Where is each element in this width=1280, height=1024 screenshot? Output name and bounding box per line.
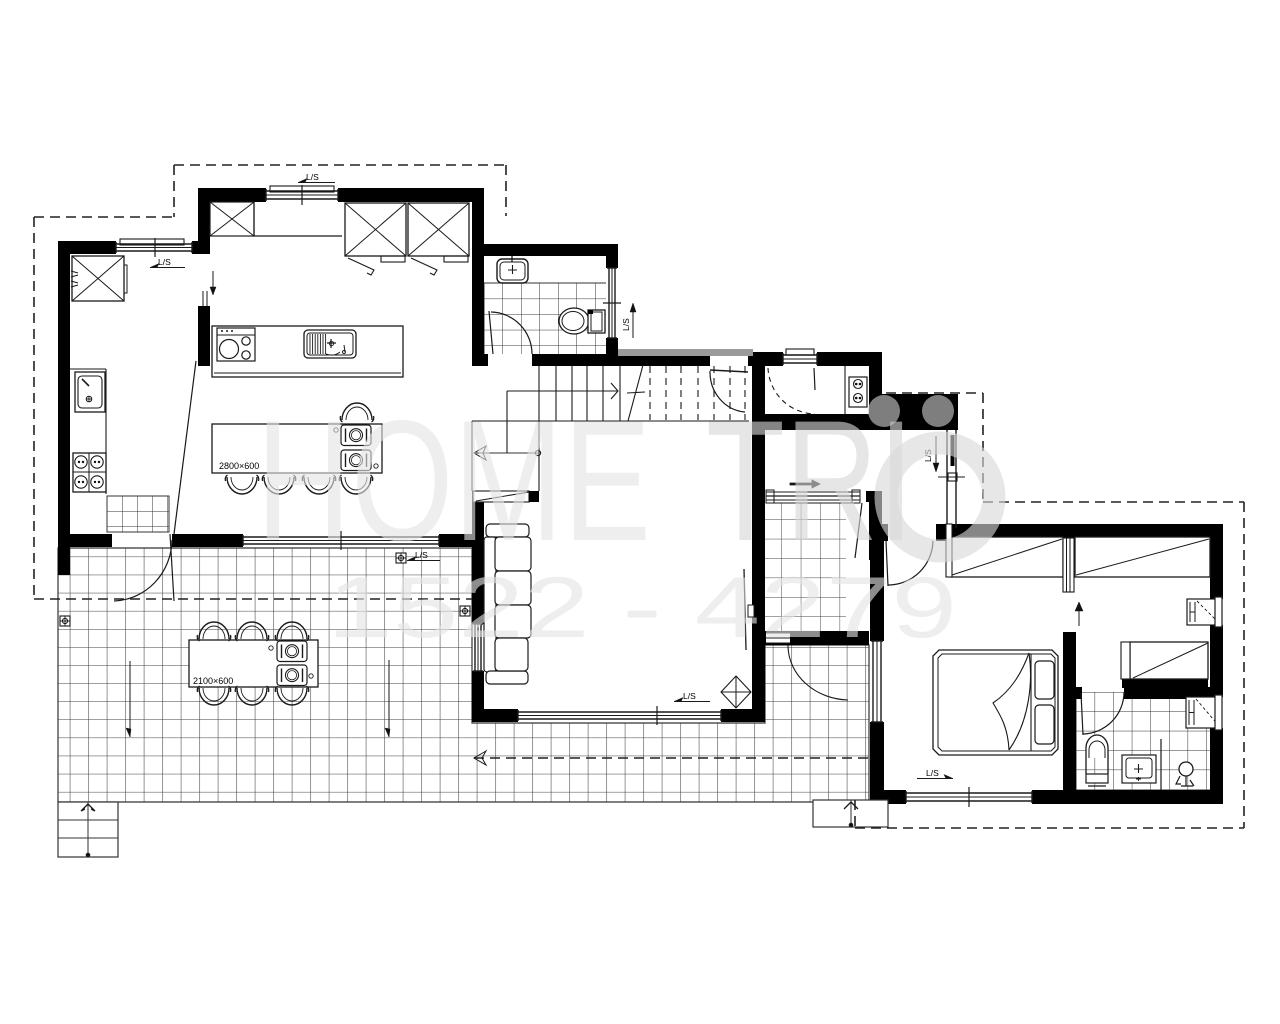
svg-text:HOME: HOME [256, 385, 651, 577]
svg-text:2800×600: 2800×600 [219, 461, 259, 471]
svg-text:L/S: L/S [158, 257, 171, 267]
svg-text:L/S: L/S [306, 172, 319, 182]
svg-text:L/S: L/S [683, 691, 696, 701]
svg-text:L/S: L/S [926, 768, 939, 778]
svg-text:L/S: L/S [621, 318, 631, 331]
svg-text:2100×600: 2100×600 [193, 676, 233, 686]
svg-text:1522 - 4279: 1522 - 4279 [327, 560, 957, 656]
